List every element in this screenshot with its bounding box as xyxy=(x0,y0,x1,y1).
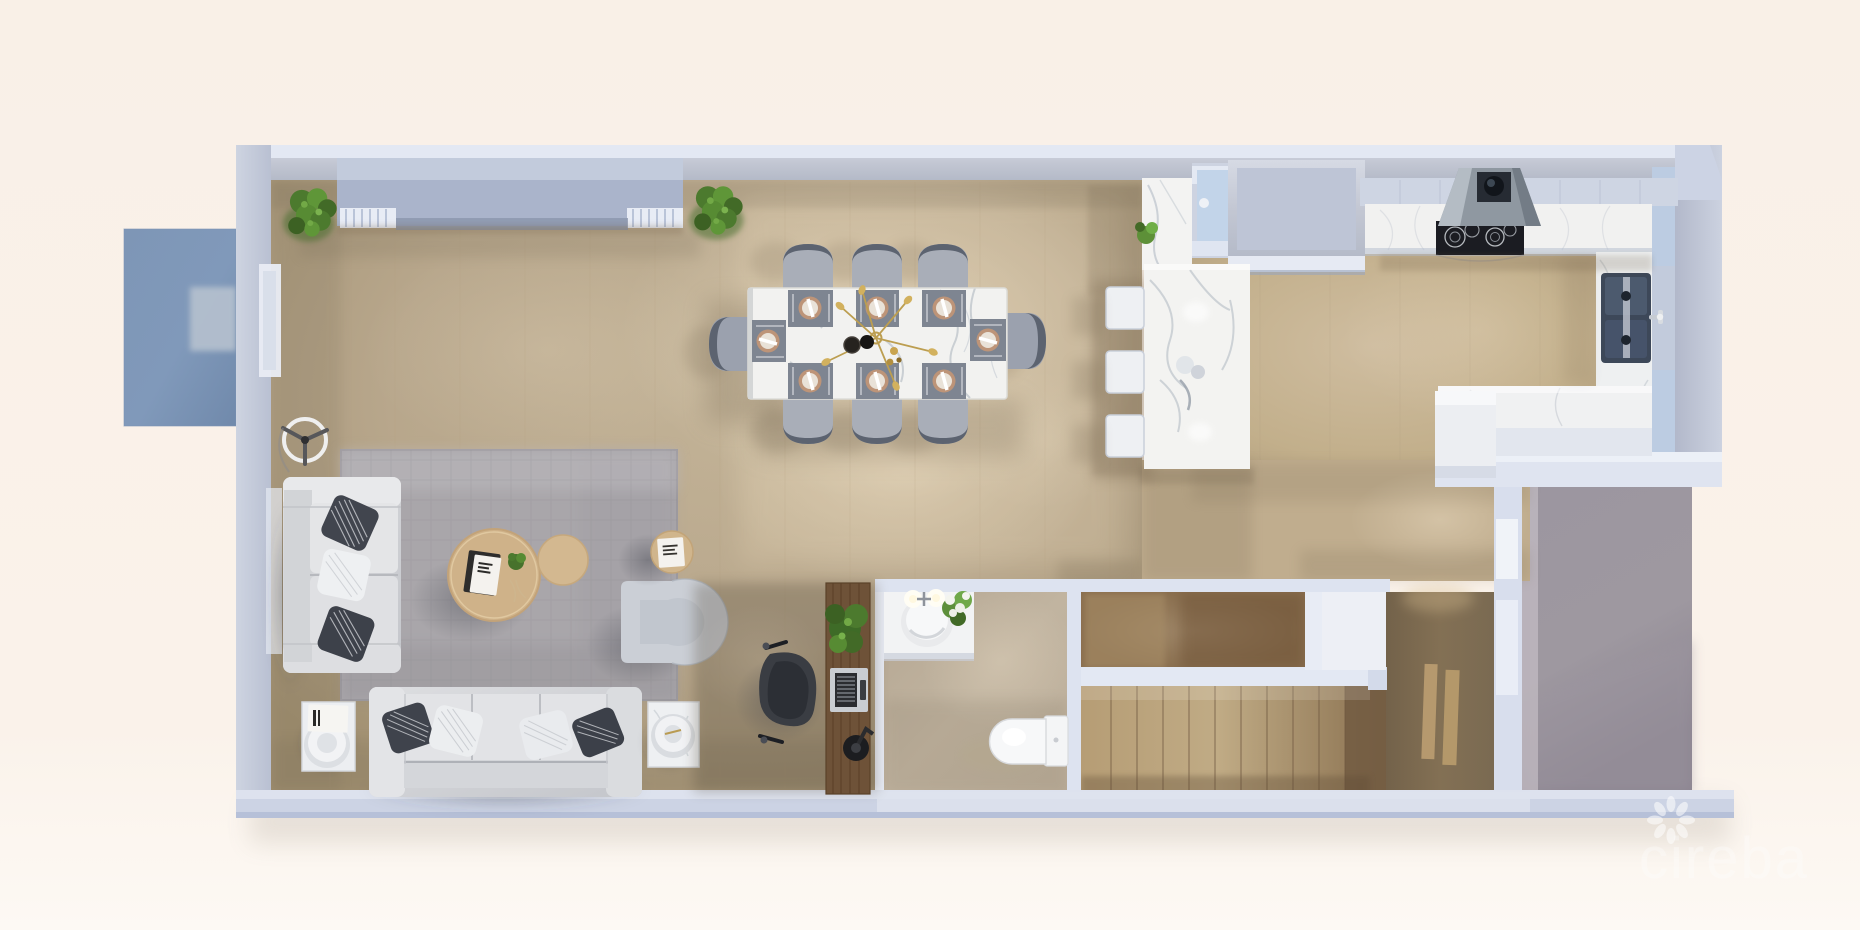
svg-text:cireba: cireba xyxy=(1639,826,1809,891)
